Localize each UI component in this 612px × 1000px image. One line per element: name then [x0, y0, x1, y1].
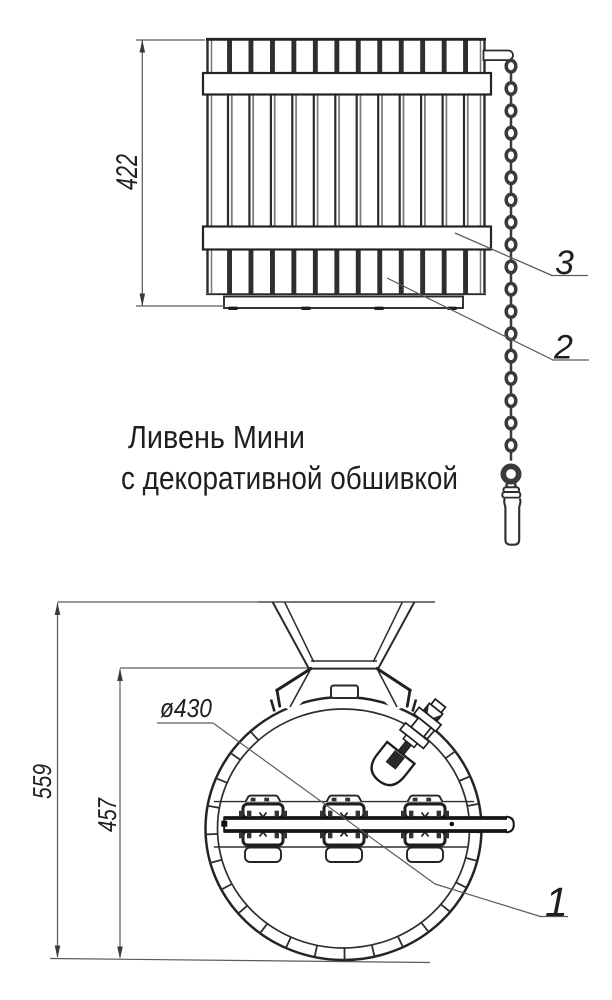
- svg-text:559: 559: [27, 764, 57, 799]
- svg-text:с декоративной обшивкой: с декоративной обшивкой: [121, 460, 458, 496]
- svg-text:ø430: ø430: [160, 693, 212, 723]
- svg-text:3: 3: [555, 244, 574, 282]
- svg-text:1: 1: [545, 879, 568, 925]
- svg-text:2: 2: [553, 329, 573, 367]
- svg-text:457: 457: [92, 797, 122, 832]
- svg-text:422: 422: [111, 154, 144, 190]
- svg-text:Ливень Мини: Ливень Мини: [128, 419, 305, 455]
